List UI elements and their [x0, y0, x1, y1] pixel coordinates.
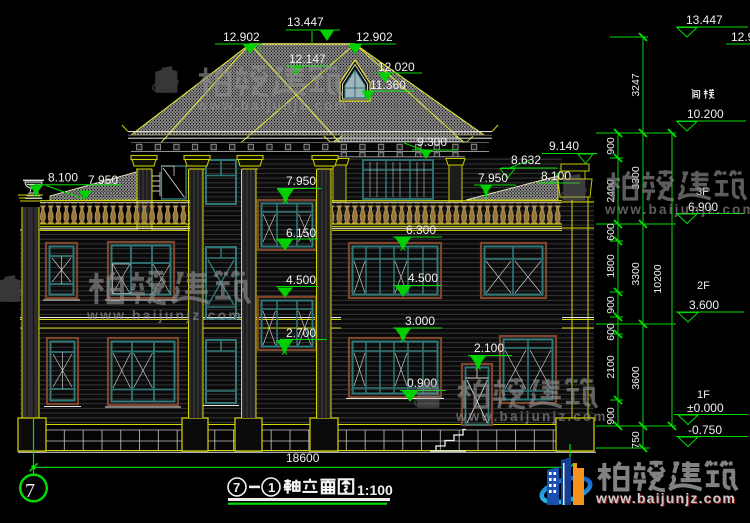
svg-text:www.baijunjz.com: www.baijunjz.com — [595, 490, 736, 506]
svg-text:12.9: 12.9 — [731, 30, 750, 44]
svg-text:900: 900 — [605, 137, 617, 155]
svg-text:9.140: 9.140 — [549, 139, 579, 153]
svg-text:7.950: 7.950 — [286, 174, 316, 188]
svg-text:3247: 3247 — [630, 73, 642, 97]
svg-text:2.100: 2.100 — [474, 341, 504, 355]
svg-text:7.950: 7.950 — [478, 171, 508, 185]
svg-text:1:100: 1:100 — [357, 482, 393, 498]
svg-text:-0.750: -0.750 — [688, 423, 722, 437]
svg-text:4.500: 4.500 — [408, 271, 438, 285]
svg-text:900: 900 — [605, 296, 617, 314]
svg-text:2100: 2100 — [605, 355, 617, 379]
svg-text:13.447: 13.447 — [287, 15, 324, 29]
svg-text:2.700: 2.700 — [286, 326, 316, 340]
svg-text:1F: 1F — [697, 389, 710, 401]
svg-text:600: 600 — [605, 223, 617, 241]
svg-text:www.baijunjz.com: www.baijunjz.com — [86, 307, 243, 323]
svg-text:3600: 3600 — [630, 366, 642, 390]
svg-text:7: 7 — [233, 480, 240, 495]
svg-text:www.baijunjz.com: www.baijunjz.com — [604, 202, 750, 217]
svg-text:9.300: 9.300 — [417, 135, 447, 149]
svg-text:13.447: 13.447 — [686, 13, 723, 27]
svg-text:12.020: 12.020 — [378, 60, 415, 74]
svg-text:8.632: 8.632 — [511, 153, 541, 167]
svg-text:11.360: 11.360 — [370, 78, 406, 92]
svg-text:750: 750 — [630, 431, 642, 449]
svg-text:3.600: 3.600 — [689, 298, 719, 312]
svg-text:7: 7 — [25, 480, 35, 502]
svg-text:±0.000: ±0.000 — [687, 401, 724, 415]
svg-text:8.100: 8.100 — [48, 171, 78, 185]
svg-text:10200: 10200 — [652, 264, 664, 293]
svg-text:3300: 3300 — [630, 262, 642, 286]
svg-text:www.baijunjz.com: www.baijunjz.com — [196, 98, 349, 113]
svg-text:1800: 1800 — [605, 254, 617, 278]
svg-text:6.300: 6.300 — [406, 223, 436, 237]
svg-text:7.950: 7.950 — [88, 173, 118, 187]
svg-text:2F: 2F — [697, 280, 710, 292]
svg-text:12.147: 12.147 — [289, 52, 326, 66]
svg-text:12.902: 12.902 — [223, 30, 260, 44]
svg-text:www.baijunjz.com: www.baijunjz.com — [455, 409, 608, 424]
svg-text:12.902: 12.902 — [356, 30, 393, 44]
svg-text:4.500: 4.500 — [286, 273, 316, 287]
svg-text:6.150: 6.150 — [286, 226, 316, 240]
svg-text:1: 1 — [268, 480, 275, 495]
svg-text:600: 600 — [605, 323, 617, 341]
svg-text:10.200: 10.200 — [687, 107, 724, 121]
svg-text:3.000: 3.000 — [405, 314, 435, 328]
svg-text:18600: 18600 — [286, 451, 320, 465]
